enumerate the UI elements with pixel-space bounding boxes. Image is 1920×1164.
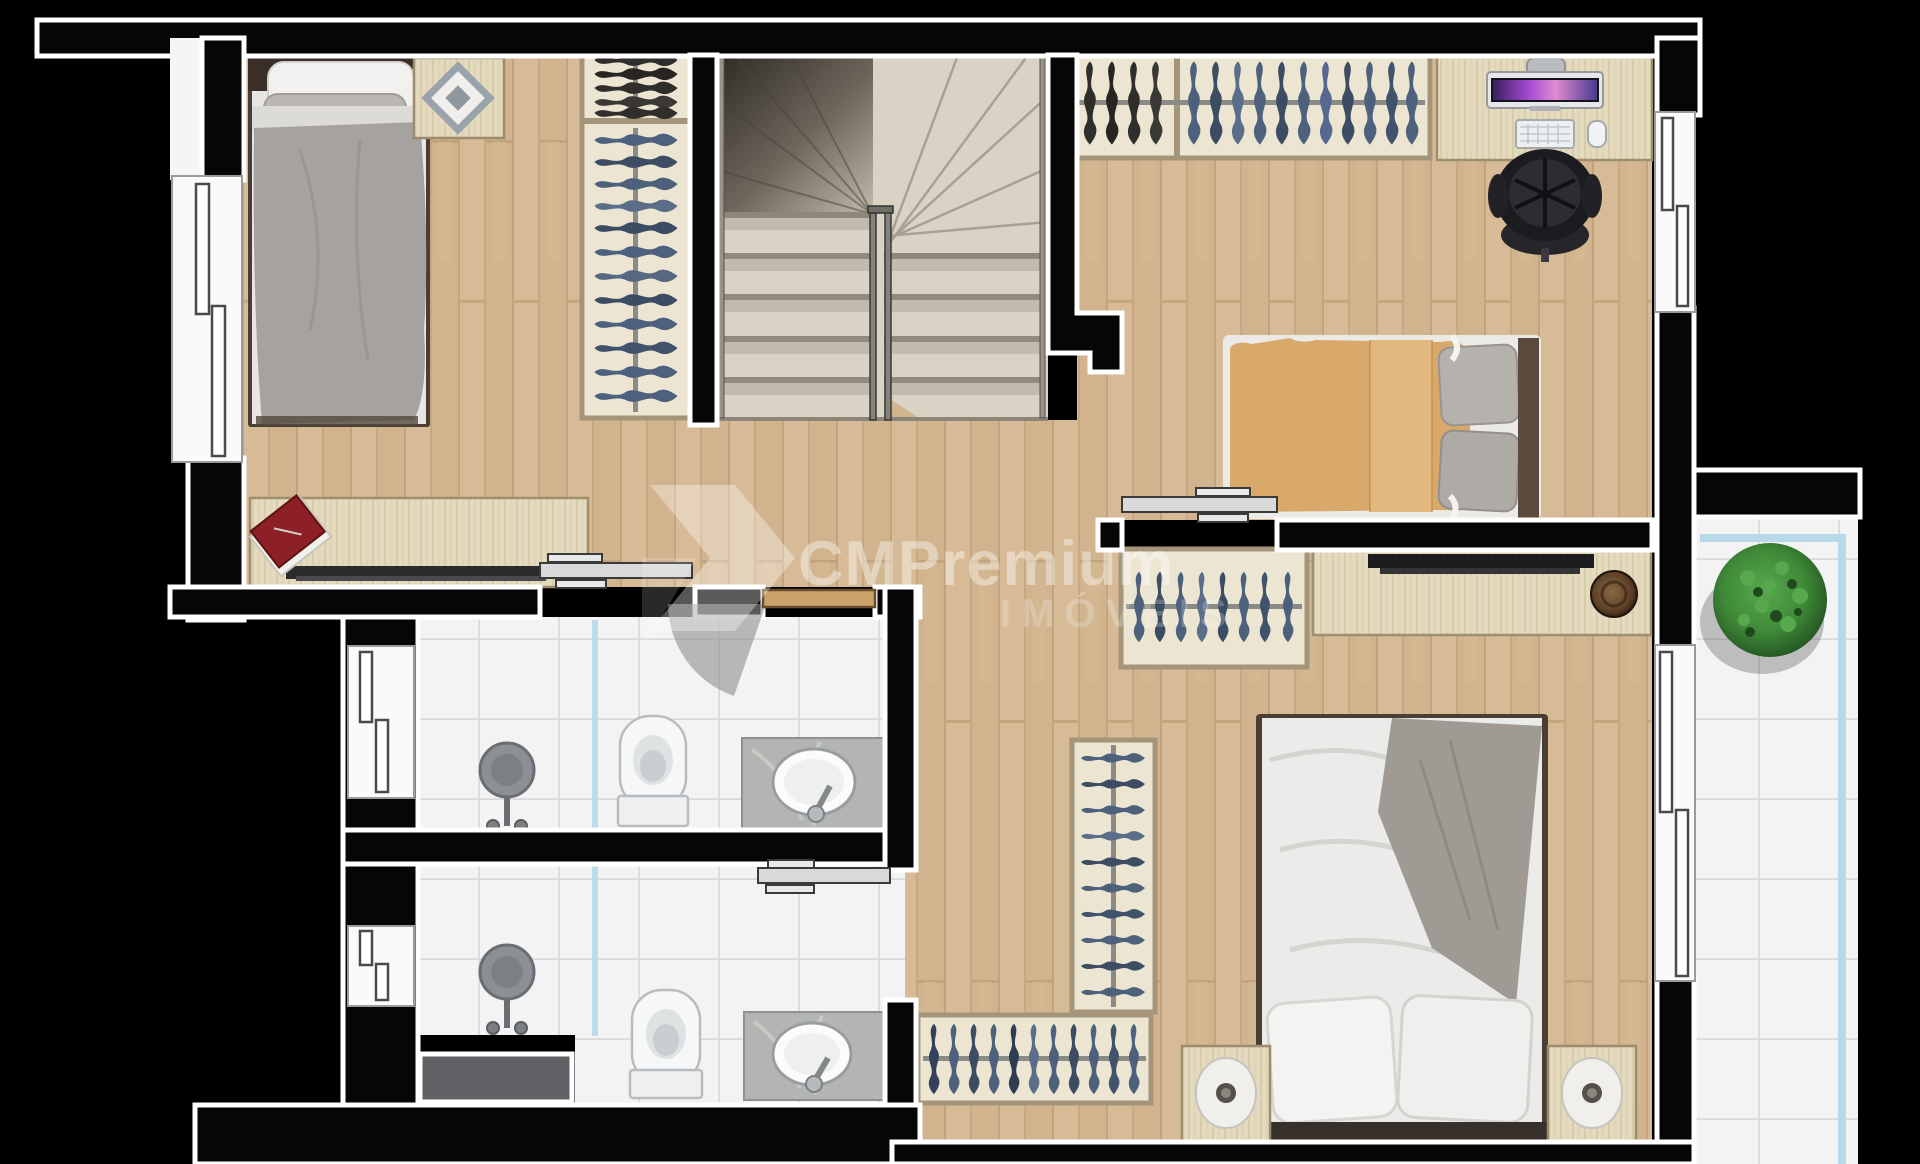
wall-top	[37, 20, 1700, 56]
sideboard-tv	[1313, 551, 1651, 635]
floor-plan-drawing	[0, 0, 1920, 1164]
wall-balcony-top	[1694, 470, 1860, 517]
wall-bottom-left	[195, 1105, 920, 1164]
balcony-sliding-door	[1655, 645, 1695, 981]
balcony-glass-railing-top	[1700, 534, 1846, 542]
tv	[1368, 554, 1594, 568]
staircase	[717, 55, 1048, 421]
balcony-glass-railing-right	[1838, 534, 1846, 1164]
side-table	[414, 58, 504, 138]
wall-stair-left	[690, 55, 717, 425]
wall-bathroom-right-upper	[885, 587, 916, 870]
pillow-tan-bed-1	[1438, 344, 1520, 426]
wall-right-top	[1657, 38, 1700, 115]
wall-bedroom2-bottom-b	[1277, 520, 1652, 550]
tan-duvet	[1230, 338, 1472, 513]
pillow-master-1	[1266, 996, 1398, 1124]
decor-bowl	[1591, 571, 1637, 617]
stair-bottom-edge	[717, 417, 1048, 421]
double-bed-white	[1256, 714, 1548, 1142]
door-leaf	[763, 590, 875, 607]
wardrobe-bedroom-2	[1070, 48, 1430, 158]
stair-side-rail-right	[1040, 57, 1045, 418]
pillow-master-2	[1397, 995, 1533, 1124]
wall-right-lower	[1657, 978, 1694, 1164]
toilet-1	[618, 716, 688, 826]
shower-glass-1	[592, 620, 598, 828]
wall-bathroom-right-lower	[885, 1000, 916, 1107]
toilet-2	[630, 990, 702, 1098]
double-bed-tan	[1223, 335, 1541, 520]
tan-bed-headboard	[1518, 338, 1539, 518]
bath-mat	[420, 1054, 572, 1102]
wall-bedroom2-bottom-a	[1098, 520, 1122, 550]
computer-desk	[1437, 55, 1652, 160]
wall-bathroom-divider	[343, 830, 905, 864]
wall-bottom-right	[892, 1142, 1694, 1164]
blanket-gray	[254, 122, 427, 424]
single-bed	[248, 55, 430, 427]
window-bedroom1	[172, 176, 242, 462]
wall-right-mid	[1657, 308, 1694, 650]
wardrobe-master-top	[1121, 549, 1307, 667]
master-headboard	[1256, 1122, 1548, 1142]
wall-left-doorframe	[170, 38, 204, 180]
floor-plan-stage: CMPremium IMÓVEIS	[0, 0, 1920, 1164]
wardrobe-bedroom-1	[582, 45, 690, 418]
nightstand-left	[1182, 1046, 1270, 1142]
desk-dresser	[248, 494, 588, 587]
vanity-sink-2	[744, 1012, 884, 1100]
window-bedroom2	[1655, 112, 1695, 312]
nightstand-right	[1548, 1046, 1636, 1142]
wall-left-upper	[202, 38, 244, 180]
wall-bedroom1-bottom-a	[170, 587, 540, 617]
monitor	[1487, 72, 1603, 111]
shower-glass-2	[592, 866, 598, 1036]
wardrobe-master-bottom	[918, 1015, 1151, 1103]
vanity-sink-1	[742, 738, 887, 832]
window-bathroom1	[348, 646, 414, 798]
stair-side-rail-left	[719, 57, 724, 418]
window-bathroom2	[348, 926, 414, 1006]
mouse	[1588, 121, 1606, 147]
wardrobe-master-vertical	[1072, 740, 1155, 1012]
keyboard-keys	[1520, 124, 1570, 144]
